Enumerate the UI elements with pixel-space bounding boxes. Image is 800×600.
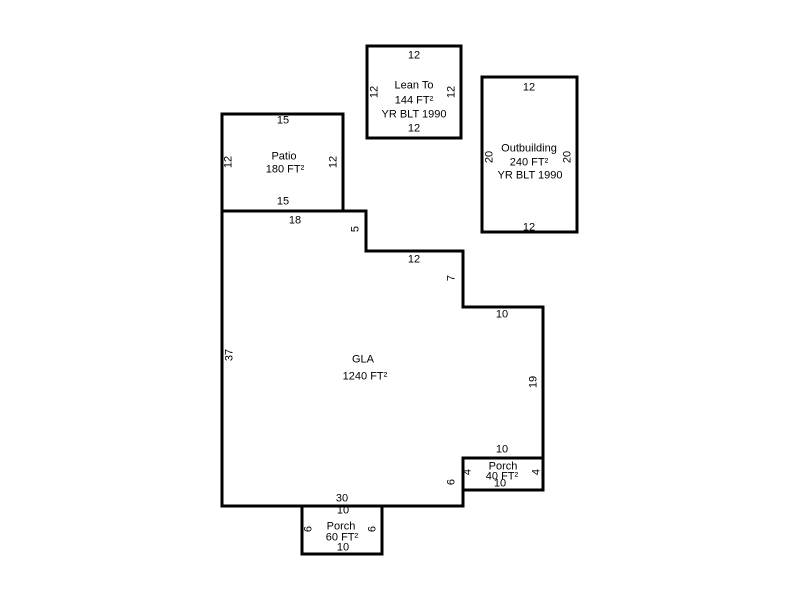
outbuilding-label: Outbuilding [501,144,557,155]
gla-dim-lower-right-wall: 6 [447,479,458,485]
lean-to-area: 144 FT² [395,96,434,107]
gla-area: 1240 FT² [343,372,388,383]
outbuilding-year-built: YR BLT 1990 [497,171,562,182]
porch-bottom-dim-left: 6 [304,526,315,532]
gla-dim-step-down-2: 7 [447,275,458,281]
patio-area: 180 FT² [266,165,305,176]
gla-dim-step-down-1: 5 [351,226,362,232]
floor-plan-sketch: 12 Lean To 144 FT² YR BLT 1990 12 12 12 … [0,0,800,600]
porch-bottom-dim-bottom: 10 [337,543,349,554]
porch-right-dim-bottom: 10 [494,479,506,490]
porch-bottom-dim-top: 10 [337,506,349,517]
gla-label: GLA [352,355,374,366]
outbuilding-dim-top: 12 [523,83,535,94]
patio-label: Patio [271,152,296,163]
patio-dim-top: 15 [277,116,289,127]
porch-bottom-dim-right: 6 [368,526,379,532]
outbuilding-dim-right: 20 [563,151,574,163]
lean-to-label: Lean To [395,81,434,92]
gla-dim-step-right-1: 12 [408,255,420,266]
outbuilding-area: 240 FT² [510,158,549,169]
porch-right-dim-right: 4 [532,469,543,475]
lean-to-dim-top: 12 [408,51,420,62]
patio-dim-left: 12 [224,156,235,168]
lean-to-dim-bottom: 12 [408,124,420,135]
gla-dim-above-porch: 10 [496,445,508,456]
gla-dim-right-wall: 19 [529,376,540,388]
outbuilding-dim-left: 20 [485,151,496,163]
lean-to-year-built: YR BLT 1990 [381,110,446,121]
gla-dim-left-wall: 37 [225,349,236,361]
gla-dim-bottom-edge: 30 [336,494,348,505]
lean-to-dim-right: 12 [447,86,458,98]
outbuilding-dim-bottom: 12 [523,223,535,234]
patio-dim-right: 12 [329,156,340,168]
gla-dim-step-right-2: 10 [496,310,508,321]
lean-to-dim-left: 12 [370,86,381,98]
gla-dim-top-edge: 18 [289,216,301,227]
porch-right-dim-left: 4 [463,469,474,475]
patio-dim-bottom: 15 [277,197,289,208]
